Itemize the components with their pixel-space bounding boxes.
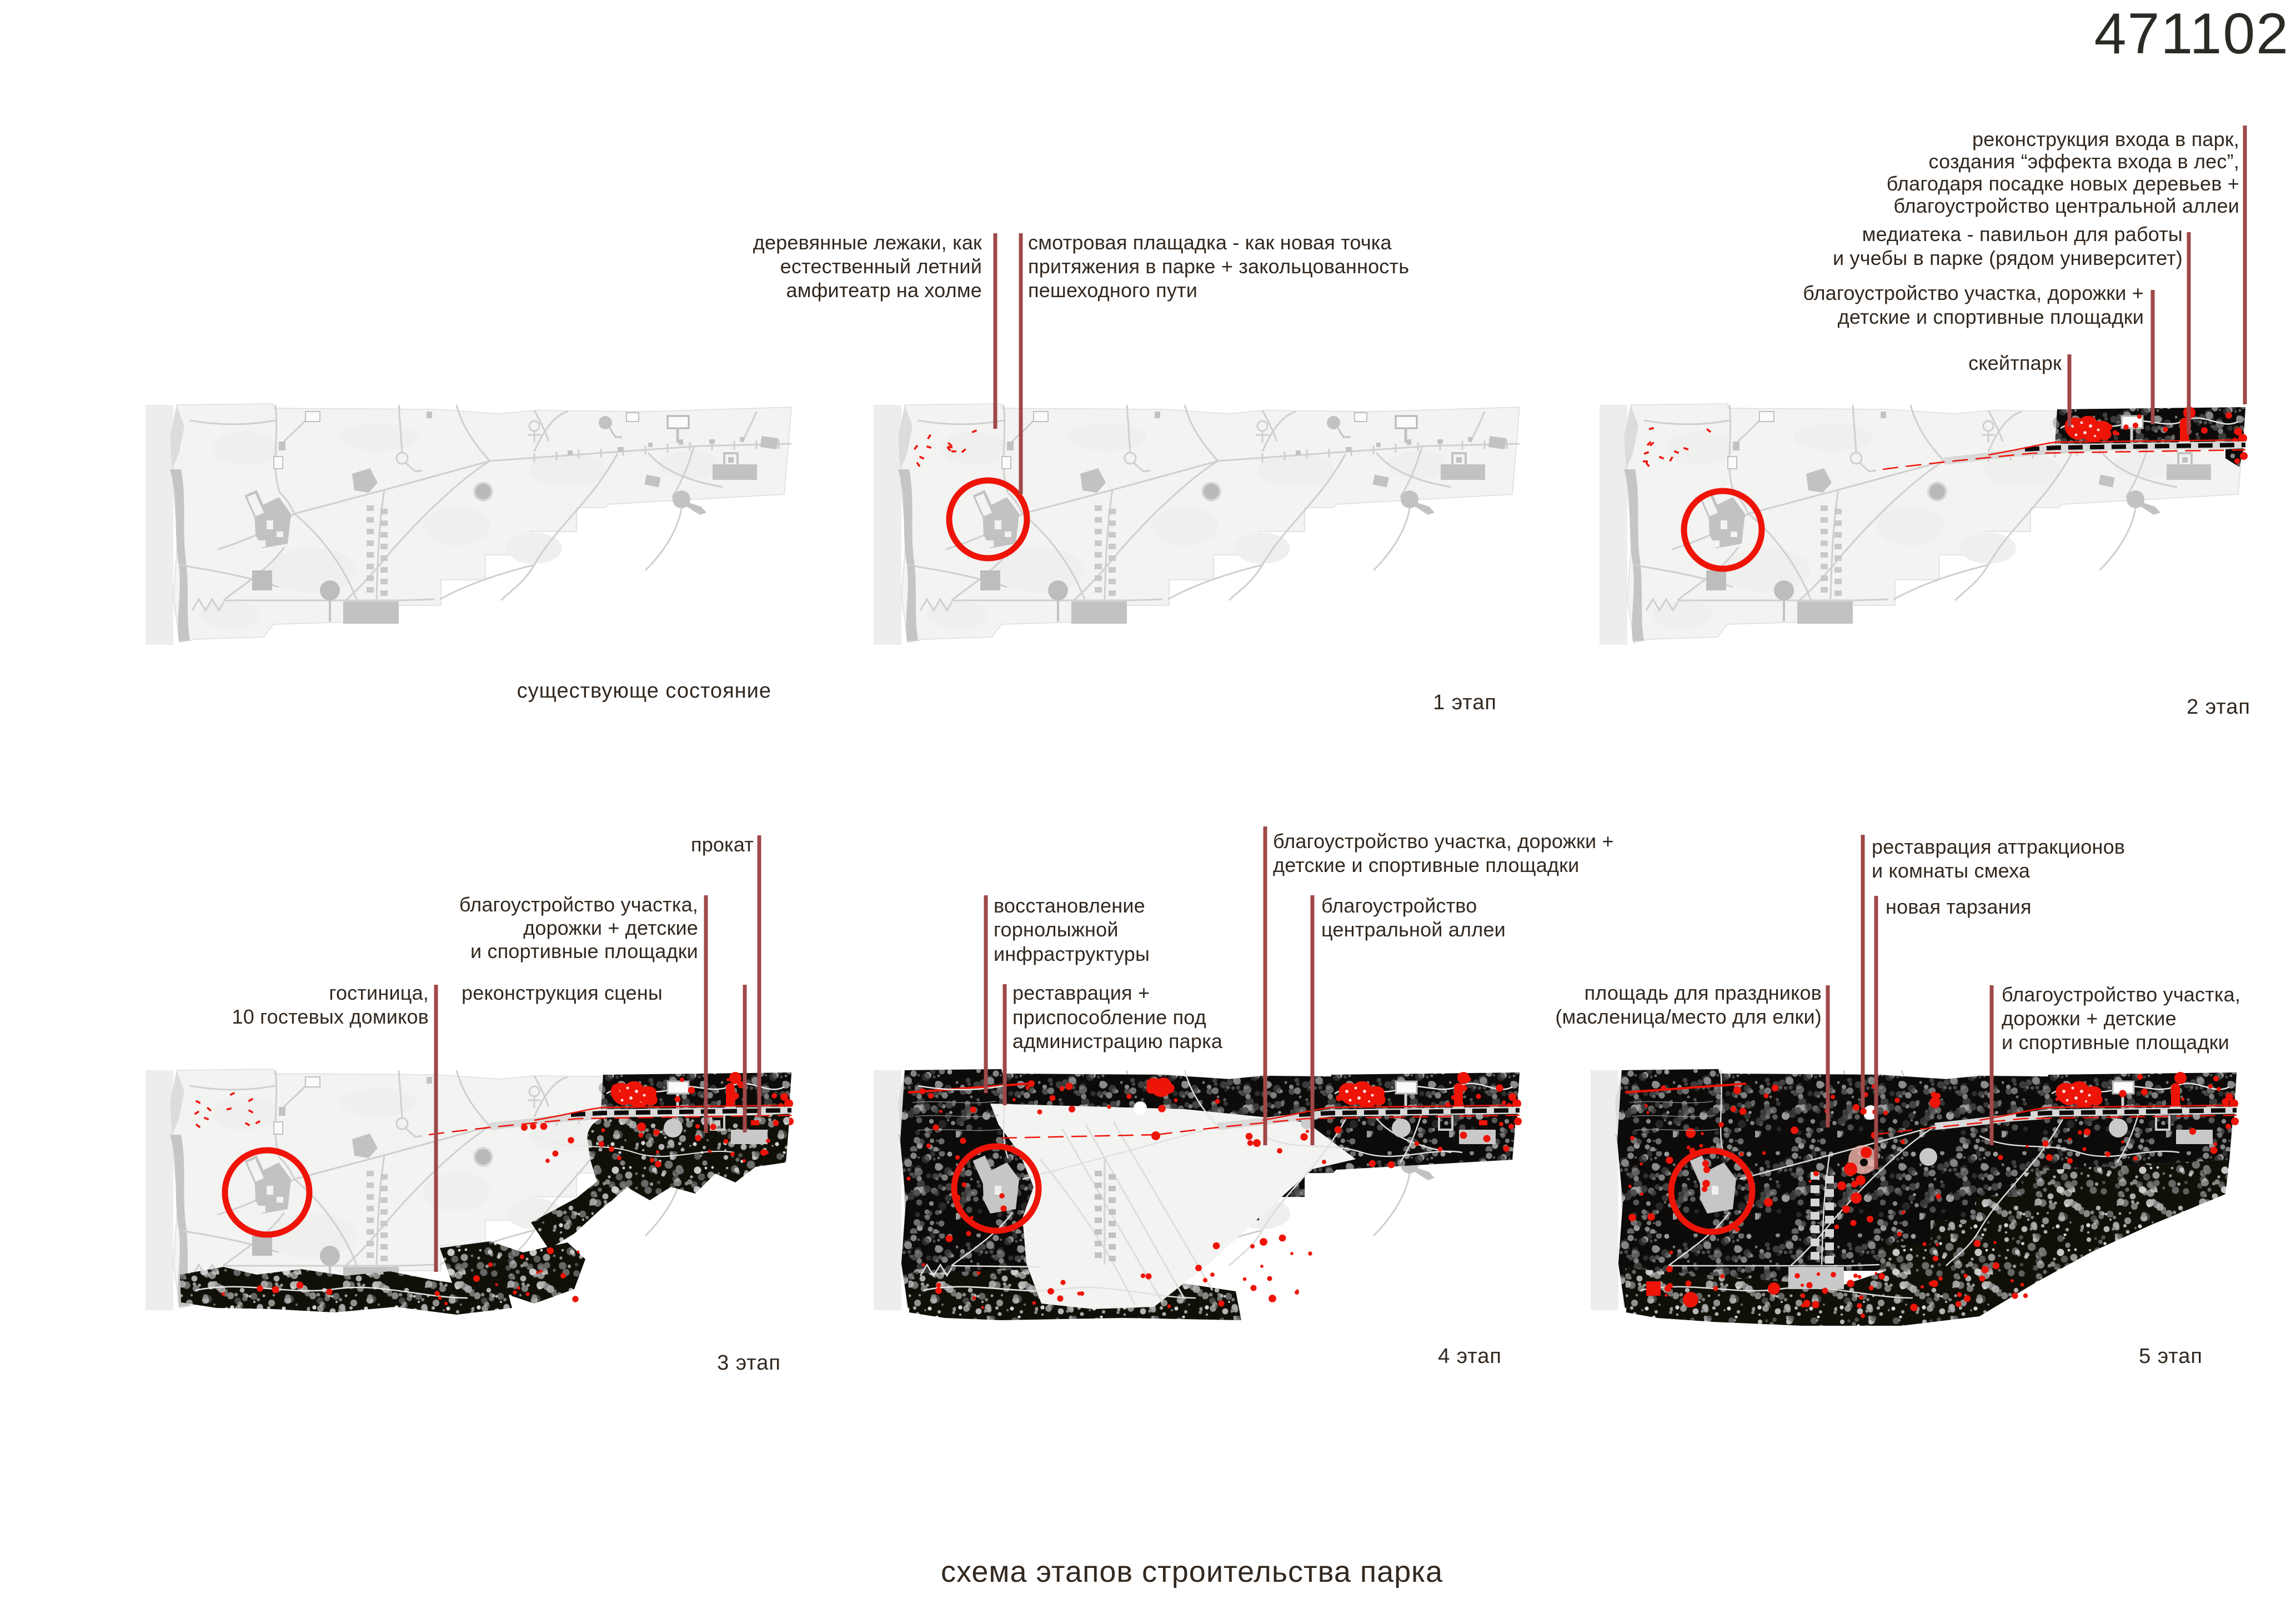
svg-text:прокат: прокат <box>691 833 754 856</box>
svg-text:существующе состояние: существующе состояние <box>517 679 771 703</box>
svg-text:реставрация +: реставрация + <box>1012 981 1150 1004</box>
svg-text:медиатека - павильон для рабо: медиатека - павильон для работы <box>1862 223 2183 245</box>
svg-text:(масленица/место для елки): (масленица/место для елки) <box>1555 1005 1822 1028</box>
svg-text:детские и спортивные площадки: детские и спортивные площадки <box>1838 305 2144 328</box>
svg-text:детские и спортивные площадки: детские и спортивные площадки <box>1273 854 1579 876</box>
svg-text:площадь для праздников: площадь для праздников <box>1585 981 1822 1004</box>
svg-text:смотровая плащадка - как новая: смотровая плащадка - как новая точка <box>1028 231 1392 254</box>
svg-text:благоустройство участка, дорож: благоустройство участка, дорожки + <box>1803 282 2144 304</box>
svg-text:благодаря посадке новых деревь: благодаря посадке новых деревьев + <box>1887 172 2239 195</box>
svg-text:дорожки + детские: дорожки + детские <box>523 916 698 939</box>
svg-text:скейтпарк: скейтпарк <box>1968 352 2062 374</box>
svg-text:5 этап: 5 этап <box>2139 1345 2203 1368</box>
svg-text:благоустройство участка,: благоустройство участка, <box>2002 983 2240 1006</box>
svg-text:новая тарзания: новая тарзания <box>1886 895 2032 918</box>
svg-text:притяжения в парке + закольцов: притяжения в парке + закольцованность <box>1028 255 1409 278</box>
svg-text:благоустройство центральной ал: благоустройство центральной аллеи <box>1893 194 2239 217</box>
svg-text:дорожки + детские: дорожки + детские <box>2002 1007 2177 1030</box>
svg-text:реставрация аттракционов: реставрация аттракционов <box>1872 835 2125 858</box>
svg-text:амфитеатр на холме: амфитеатр на холме <box>786 279 982 302</box>
svg-text:центральной аллеи: центральной аллеи <box>1321 918 1506 941</box>
svg-text:горнолыжной: горнолыжной <box>994 918 1119 941</box>
svg-text:реконструкция сцены: реконструкция сцены <box>462 981 663 1004</box>
svg-text:и спортивные площадки: и спортивные площадки <box>470 940 698 963</box>
svg-text:и комнаты смеха: и комнаты смеха <box>1872 859 2031 882</box>
svg-text:инфраструктуры: инфраструктуры <box>994 943 1150 965</box>
svg-text:реконструкция входа в парк,: реконструкция входа в парк, <box>1972 128 2239 151</box>
svg-text:2 этап: 2 этап <box>2187 695 2250 719</box>
svg-text:приспособление под: приспособление под <box>1012 1006 1206 1029</box>
svg-text:471102: 471102 <box>2094 2 2289 66</box>
svg-text:4 этап: 4 этап <box>1438 1345 1502 1368</box>
svg-text:благоустройство: благоустройство <box>1321 894 1477 917</box>
svg-text:3 этап: 3 этап <box>717 1351 781 1375</box>
svg-text:гостиница,: гостиница, <box>329 981 429 1004</box>
svg-text:администрацию парка: администрацию парка <box>1012 1030 1223 1052</box>
svg-text:схема этапов строительства пар: схема этапов строительства парка <box>941 1555 1443 1588</box>
svg-text:и учебы в парке (рядом универс: и учебы в парке (рядом университет) <box>1833 247 2183 269</box>
svg-text:10 гостевых домиков: 10 гостевых домиков <box>232 1005 429 1028</box>
svg-text:благоустройство участка, дорож: благоустройство участка, дорожки + <box>1273 830 1614 853</box>
svg-text:благоустройство участка,: благоустройство участка, <box>459 893 698 916</box>
svg-text:деревянные лежаки, как: деревянные лежаки, как <box>753 231 982 254</box>
svg-text:1 этап: 1 этап <box>1433 691 1497 714</box>
svg-text:создания “эффекта входа в лес: создания “эффекта входа в лес”, <box>1929 150 2239 173</box>
svg-text:пешеходного пути: пешеходного пути <box>1028 279 1197 302</box>
svg-text:восстановление: восстановление <box>994 894 1145 917</box>
svg-text:естественный летний: естественный летний <box>780 255 982 278</box>
svg-text:и спортивные площадки: и спортивные площадки <box>2002 1031 2229 1054</box>
